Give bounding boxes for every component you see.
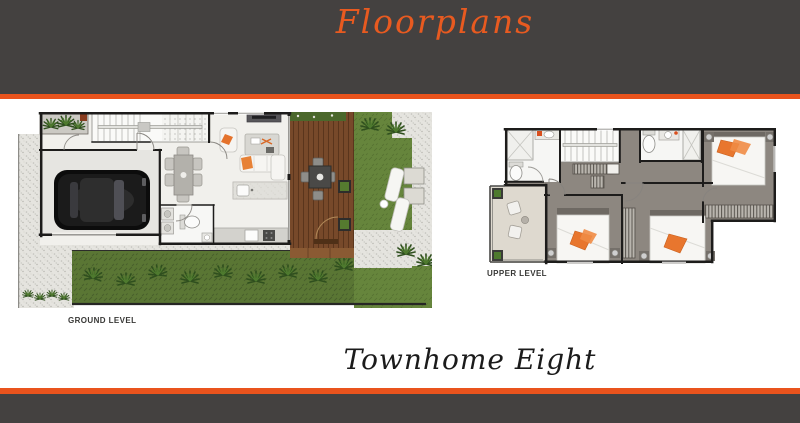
car-icon [54, 170, 150, 230]
kitchen-island-icon [233, 182, 287, 199]
brochure-page: Floorplans [0, 0, 800, 423]
stairs-icon-upper [560, 128, 620, 162]
toilet-icon-ensuite [509, 162, 523, 181]
balcony [490, 186, 545, 263]
upper-level-floorplan [487, 128, 776, 265]
kitchen-bench-icon [214, 228, 288, 243]
bed-icon-2 [704, 132, 775, 185]
wardrobe-icon-bed2 [705, 205, 773, 218]
vanity-icon [202, 233, 212, 242]
powder-room [160, 205, 214, 244]
vanity-icon-ensuite [535, 130, 560, 140]
bed-icon-master [546, 208, 620, 263]
top-banner: Floorplans [0, 0, 800, 94]
armchair-icon [220, 128, 237, 152]
wardrobe-icon-bed3 [623, 208, 635, 258]
main-bathroom [640, 128, 702, 162]
ground-level-caption: GROUND LEVEL [68, 316, 136, 325]
townhome-script-title: Townhome Eight [320, 343, 620, 376]
stairs-icon [92, 112, 210, 142]
top-orange-stripe [0, 94, 800, 99]
tv-unit-icon [247, 114, 281, 122]
coffee-table-icon [245, 134, 279, 155]
ensuite-bathroom [505, 128, 560, 182]
garage-door-icon [52, 233, 116, 238]
entry-planter-icon [40, 112, 88, 134]
bottom-banner [0, 394, 800, 423]
upper-level-caption: UPPER LEVEL [487, 269, 547, 278]
shower-icon-main [683, 130, 700, 160]
toilet-icon-main [643, 130, 655, 153]
floorplans-script-title: Floorplans [280, 2, 590, 41]
vanity-icon-main [659, 130, 679, 140]
shower-icon [507, 130, 533, 160]
toilet-icon [180, 215, 200, 229]
ground-level-floorplan [18, 112, 432, 310]
